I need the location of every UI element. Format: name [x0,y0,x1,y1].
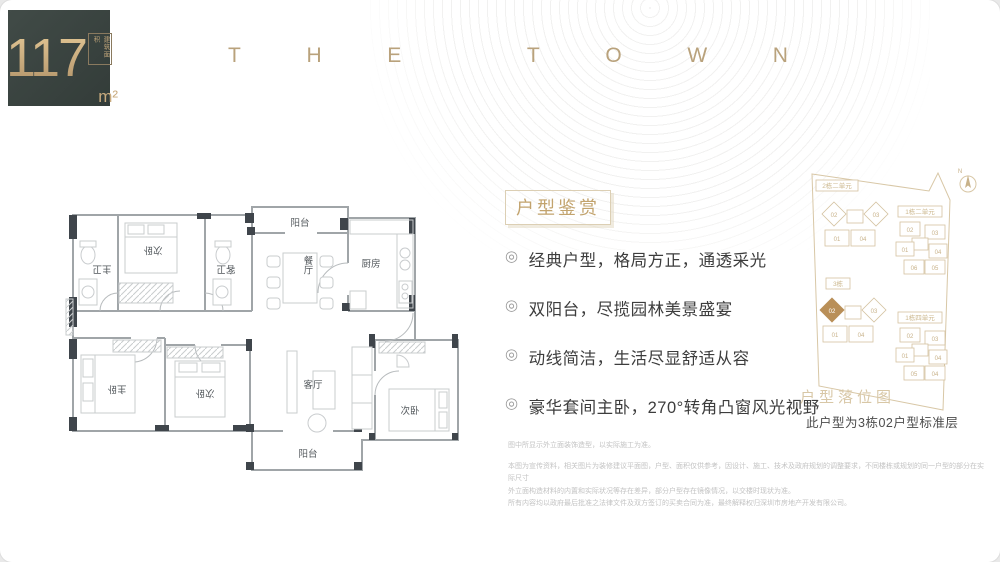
room-label-kitchen: 厨房 [361,258,380,270]
room-label-dining: 餐厅 [302,255,314,275]
site-location-diagram: N 2栋二单元 02 03 01 04 3栋 02 03 0 [792,160,992,420]
room-label-guest-bath: 客卫 [216,263,236,275]
features-title: 户型鉴赏 [505,190,611,225]
feature-text: 经典户型，格局方正，通透采光 [529,247,767,271]
building-cluster-highlighted: 3栋 02 03 01 04 [820,278,886,342]
sitemap-note: 此户型为3栋02户型标准层 [806,412,958,431]
svg-text:01: 01 [832,333,839,339]
svg-text:02: 02 [831,213,838,219]
room-label-living: 客厅 [303,379,323,391]
bullet-icon: ◎ [505,345,519,365]
feature-text: 豪华套间主卧，270°转角凸窗风光视野 [529,394,820,418]
svg-text:05: 05 [911,372,918,378]
floor-plan: 阳台 餐厅 厨房 次卧 主卫 客卫 主卧 次卧 客厅 次卧 阳台 [55,193,465,488]
room-label-bedroom-right: 次卧 [400,405,420,417]
building-cluster: 1栋四单元 02 03 01 04 05 04 [896,312,947,380]
disclaimer-line: 图中所显示外立面装饰造型，以实际施工为准。 [508,440,988,453]
brand-letter: H [306,44,321,68]
svg-text:03: 03 [873,213,880,219]
feature-item: ◎ 动线简洁，生活尽显舒适从容 [505,345,835,369]
svg-text:04: 04 [860,237,867,243]
svg-text:03: 03 [932,231,939,237]
bullet-icon: ◎ [505,247,519,267]
area-value: 117 [6,31,86,85]
disclaimer-line: 本图为宣传资料，相关图片为装修建议平面图，户型、面积仅供参考，因设计、施工、技术… [508,461,988,486]
room-label-balcony-bottom: 阳台 [298,448,317,460]
room-label-master-bath: 主卫 [92,263,112,275]
bullet-icon: ◎ [505,296,519,316]
brand-letter: W [687,44,707,68]
area-note: 建筑面积 [88,33,112,65]
feature-item: ◎ 经典户型，格局方正，通透采光 [505,247,835,271]
wall [348,218,415,311]
svg-text:05: 05 [932,266,939,272]
compass-icon: N [958,169,976,192]
poster-page: 117 建筑面积 m² T H E T O W N [0,0,1000,562]
room-label-bedroom-top: 次卧 [143,244,163,256]
bullet-icon: ◎ [505,394,519,414]
svg-text:02: 02 [829,309,836,315]
brand-letter: O [605,44,621,68]
building-cluster: 1栋二单元 02 03 01 04 06 05 [896,206,947,274]
svg-text:04: 04 [932,372,939,378]
svg-text:2栋二单元: 2栋二单元 [822,181,852,190]
svg-text:02: 02 [907,228,914,234]
disclaimer: 图中所显示外立面装饰造型，以实际施工为准。 本图为宣传资料，相关图片为装修建议平… [508,440,988,511]
brand-letter: E [387,44,401,68]
svg-text:1栋二单元: 1栋二单元 [905,207,935,216]
area-unit: m² [98,87,118,107]
brand-letter: T [228,44,241,68]
svg-text:01: 01 [902,354,909,360]
room-label-master-bed: 主卧 [107,383,127,395]
svg-text:01: 01 [902,248,909,254]
area-badge: 117 建筑面积 m² [8,10,110,106]
room-label-balcony-top: 阳台 [290,217,309,229]
sitemap-title: 户型落位图 [800,386,895,407]
svg-text:04: 04 [935,356,942,362]
svg-text:01: 01 [834,237,841,243]
svg-text:06: 06 [911,266,918,272]
room-label-bedroom-mid: 次卧 [195,387,215,399]
svg-text:03: 03 [932,337,939,343]
svg-text:3栋: 3栋 [833,279,844,288]
feature-text: 双阳台，尽揽园林美景盛宴 [529,296,733,320]
brand-letter: N [773,44,788,68]
features-section: 户型鉴赏 ◎ 经典户型，格局方正，通透采光 ◎ 双阳台，尽揽园林美景盛宴 ◎ 动… [505,190,835,443]
building-cluster: 2栋二单元 02 03 01 04 [816,180,888,246]
svg-text:04: 04 [858,333,865,339]
disclaimer-line: 外立面构造材料的内置和实际状况等存在差异，部分户型存在镜像情况，以交楼时现状为准… [508,486,988,499]
disclaimer-line: 所有内容均以政府最后批准之法律文件及双方签订的买卖合同为准，最终解释权归深圳市房… [508,498,988,511]
svg-text:04: 04 [935,250,942,256]
svg-text:N: N [958,169,962,175]
furniture [66,220,449,432]
svg-text:1栋四单元: 1栋四单元 [905,313,935,322]
brand-wordmark: T H E T O W N [228,44,788,68]
svg-text:02: 02 [907,334,914,340]
feature-item: ◎ 豪华套间主卧，270°转角凸窗风光视野 [505,394,835,418]
feature-text: 动线简洁，生活尽显舒适从容 [529,345,750,369]
brand-letter: T [527,44,540,68]
feature-item: ◎ 双阳台，尽揽园林美景盛宴 [505,296,835,320]
svg-text:03: 03 [871,309,878,315]
